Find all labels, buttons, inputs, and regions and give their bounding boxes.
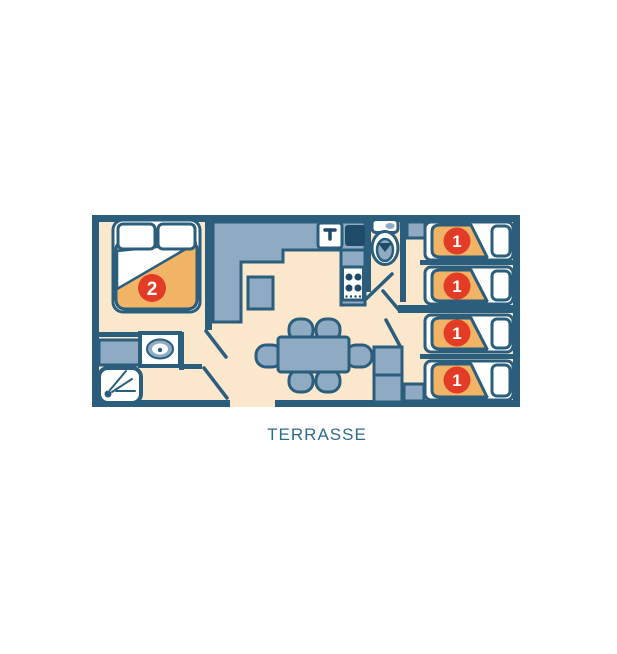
pillow-icon [492, 365, 510, 396]
shower-icon [99, 368, 141, 403]
wc [372, 220, 398, 265]
capacity-badge-single-number: 1 [452, 371, 461, 390]
bathroom-counter [99, 340, 140, 365]
wc-wall-left [366, 222, 371, 292]
pillow-icon [492, 319, 510, 348]
terrace-door-opening [230, 396, 275, 407]
bed-divider-2 [420, 354, 513, 359]
wardrobe-icon [374, 347, 402, 375]
capacity-badge-double-number: 2 [147, 279, 158, 300]
bedroom-divider-wall [398, 305, 513, 313]
bedroom-kitchen-wall [205, 222, 212, 330]
wardrobe-icon [404, 384, 424, 401]
bathroom-wall-stub [179, 364, 202, 369]
single-bed-3: 1 [425, 315, 513, 352]
pillow-icon [492, 226, 510, 256]
shower-drain [105, 391, 112, 398]
wardrobe-icon [407, 222, 425, 238]
floor-plan: 2 [0, 0, 617, 654]
kitchen-island [248, 277, 273, 309]
dining-table-icon [278, 337, 349, 372]
single-bed-1: 1 [425, 222, 513, 260]
toilet-flush-button [386, 223, 395, 229]
capacity-badge-single-number: 1 [452, 324, 461, 343]
capacity-badge-single-number: 1 [452, 232, 461, 251]
fridge-icon [345, 225, 365, 246]
pillow-icon [158, 224, 195, 249]
capacity-badge-single-number: 1 [452, 277, 461, 296]
wc-wall-right [400, 222, 406, 302]
single-bed-4: 1 [425, 361, 513, 400]
stove-icon [343, 267, 364, 300]
master-bedroom: 2 [113, 220, 200, 312]
pillow-icon [492, 271, 510, 300]
wardrobe-icon [374, 375, 402, 402]
single-bed-2: 1 [425, 267, 513, 304]
pillow-icon [118, 224, 155, 249]
terrace-label: TERRASSE [257, 425, 377, 445]
washbasin-drain [158, 348, 162, 352]
floor-plan-page: 2 [0, 0, 617, 654]
